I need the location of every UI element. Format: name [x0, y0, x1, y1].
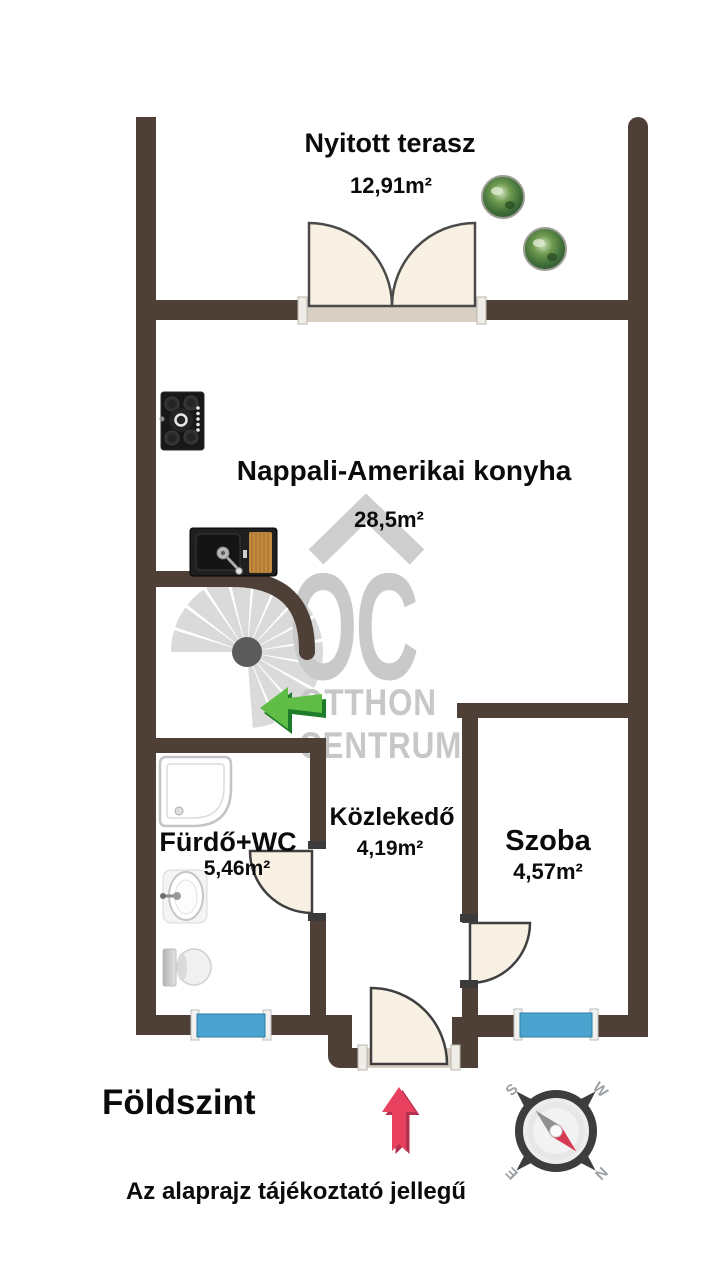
floor-title: Földszint — [102, 1083, 256, 1123]
bathroom-area-label: 5,46m² — [204, 857, 271, 881]
entrance-arrow-icon — [378, 1085, 426, 1157]
room-door — [460, 914, 530, 988]
compass-south-label: S — [502, 1080, 521, 1099]
terrace-area-label: 12,91m² — [350, 173, 432, 199]
washbasin-icon — [160, 870, 207, 923]
terrace-name-label: Nyitott terasz — [304, 128, 475, 159]
toilet-icon — [163, 949, 211, 986]
disclaimer-text: Az alaprajz tájékoztató jellegű — [126, 1178, 466, 1206]
floorplan-canvas: OC OTTHON CENTRUM — [0, 0, 720, 1280]
kitchen-sink-icon — [190, 528, 277, 576]
bathroom-name-label: Fürdő+WC — [159, 827, 296, 858]
room-area-label: 4,57m² — [513, 859, 583, 885]
living-area-label: 28,5m² — [354, 507, 424, 533]
gas-hob-icon — [160, 392, 205, 450]
compass-icon: S W N E — [495, 1066, 617, 1196]
living-name-label: Nappali-Amerikai konyha — [237, 455, 572, 487]
terrace-french-door — [298, 223, 486, 324]
room-radiator-icon — [514, 1009, 598, 1040]
room-name-label: Szoba — [505, 825, 590, 858]
hallway-name-label: Közlekedő — [329, 803, 454, 832]
plant-1-icon — [482, 176, 524, 218]
plant-2-icon — [524, 228, 566, 270]
hallway-area-label: 4,19m² — [357, 837, 424, 861]
compass-west-label: W — [589, 1079, 612, 1102]
shower-tray-icon — [160, 757, 231, 826]
entrance-door — [358, 988, 460, 1070]
compass-north-label: N — [591, 1163, 611, 1183]
bathroom-radiator-icon — [191, 1010, 271, 1040]
wall-stair-curve — [148, 579, 307, 652]
